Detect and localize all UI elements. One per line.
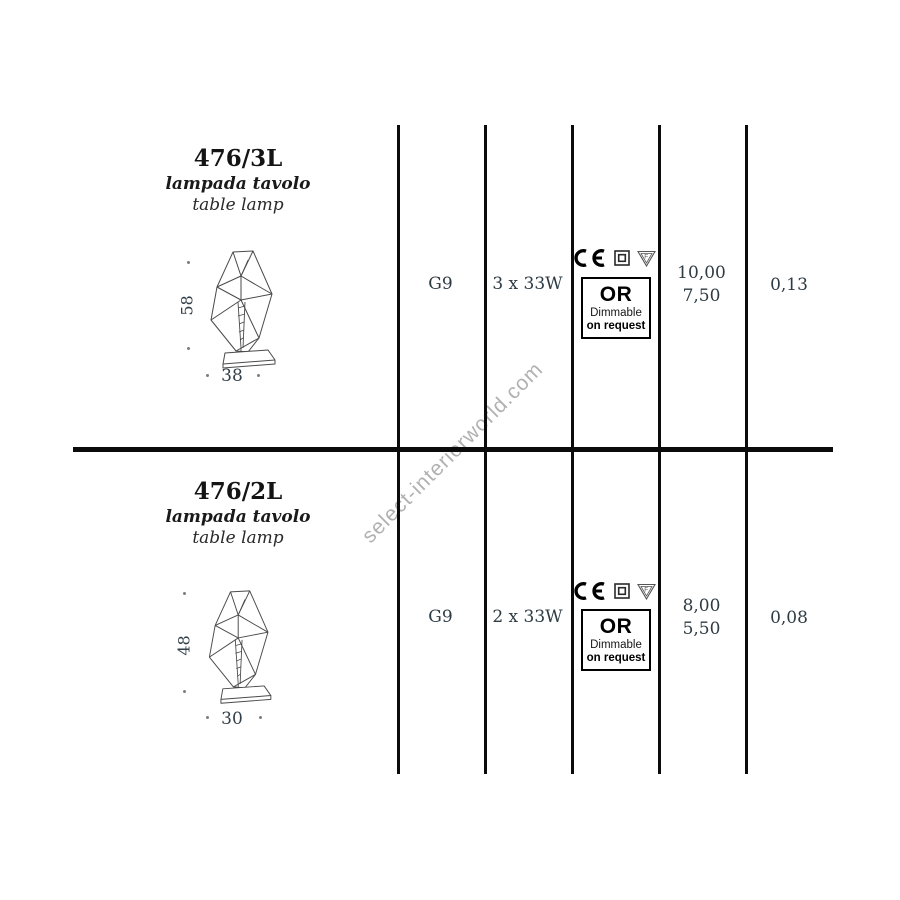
socket-value: G9 <box>397 274 484 294</box>
weight-value-top: 10,00 <box>658 262 745 285</box>
dimmable-label: Dimmable <box>590 639 642 652</box>
or-label: OR <box>600 616 633 637</box>
product-name-italian: lampada tavolo <box>90 174 386 195</box>
height-dimension-label: 48 <box>175 635 194 655</box>
volume-value: 0,13 <box>745 275 833 295</box>
on-request-label: on request <box>587 320 646 333</box>
watermark-text: select-interiorworld.com <box>358 358 549 549</box>
catalog-page: select-interiorworld.com 476/3L lampada … <box>0 0 900 900</box>
width-dimension-label: 30 <box>210 709 254 729</box>
double-insulation-icon <box>614 250 630 266</box>
weights-cell: 10,00 7,50 <box>658 262 745 308</box>
product-title-block: 476/3L lampada tavolo table lamp <box>90 146 386 215</box>
wattage-value: 2 x 33W <box>484 607 571 627</box>
f-mark-icon: F <box>637 250 656 267</box>
svg-text:F: F <box>644 253 648 260</box>
double-insulation-icon <box>614 583 630 599</box>
dimension-dot <box>183 592 186 595</box>
table-lamp-drawing <box>195 589 291 708</box>
weight-value-bottom: 5,50 <box>658 618 745 641</box>
product-code: 476/3L <box>90 146 386 172</box>
dimmable-label: Dimmable <box>590 307 642 320</box>
volume-value: 0,08 <box>745 608 833 628</box>
dimension-dot <box>259 716 262 719</box>
product-name-english: table lamp <box>90 528 386 548</box>
product-code: 476/2L <box>90 479 386 505</box>
f-mark-icon: F <box>637 583 656 600</box>
ce-mark-icon <box>573 581 607 601</box>
dimension-dot <box>206 716 209 719</box>
or-label: OR <box>600 284 633 305</box>
dimension-dot <box>187 347 190 350</box>
wattage-value: 3 x 33W <box>484 274 571 294</box>
weight-value-bottom: 7,50 <box>658 285 745 308</box>
dimmable-on-request-badge: OR Dimmable on request <box>581 609 651 671</box>
table-lamp-drawing <box>196 250 296 372</box>
dimension-dot <box>257 374 260 377</box>
product-name-english: table lamp <box>90 195 386 215</box>
weight-value-top: 8,00 <box>658 595 745 618</box>
dimension-dot <box>183 690 186 693</box>
svg-text:F: F <box>644 586 648 593</box>
on-request-label: on request <box>587 652 646 665</box>
ce-mark-icon <box>573 248 607 268</box>
dimension-dot <box>206 374 209 377</box>
dimmable-on-request-badge: OR Dimmable on request <box>581 277 651 339</box>
certification-icons: F <box>570 581 658 601</box>
certification-icons: F <box>570 248 658 268</box>
socket-value: G9 <box>397 607 484 627</box>
height-dimension-label: 58 <box>178 295 197 315</box>
product-name-italian: lampada tavolo <box>90 507 386 528</box>
product-title-block: 476/2L lampada tavolo table lamp <box>90 479 386 548</box>
weights-cell: 8,00 5,50 <box>658 595 745 641</box>
row-divider <box>73 447 833 452</box>
product-drawing-figure: 58 38 <box>175 248 320 398</box>
product-drawing-figure: 48 30 <box>170 581 315 731</box>
dimension-dot <box>187 261 190 264</box>
